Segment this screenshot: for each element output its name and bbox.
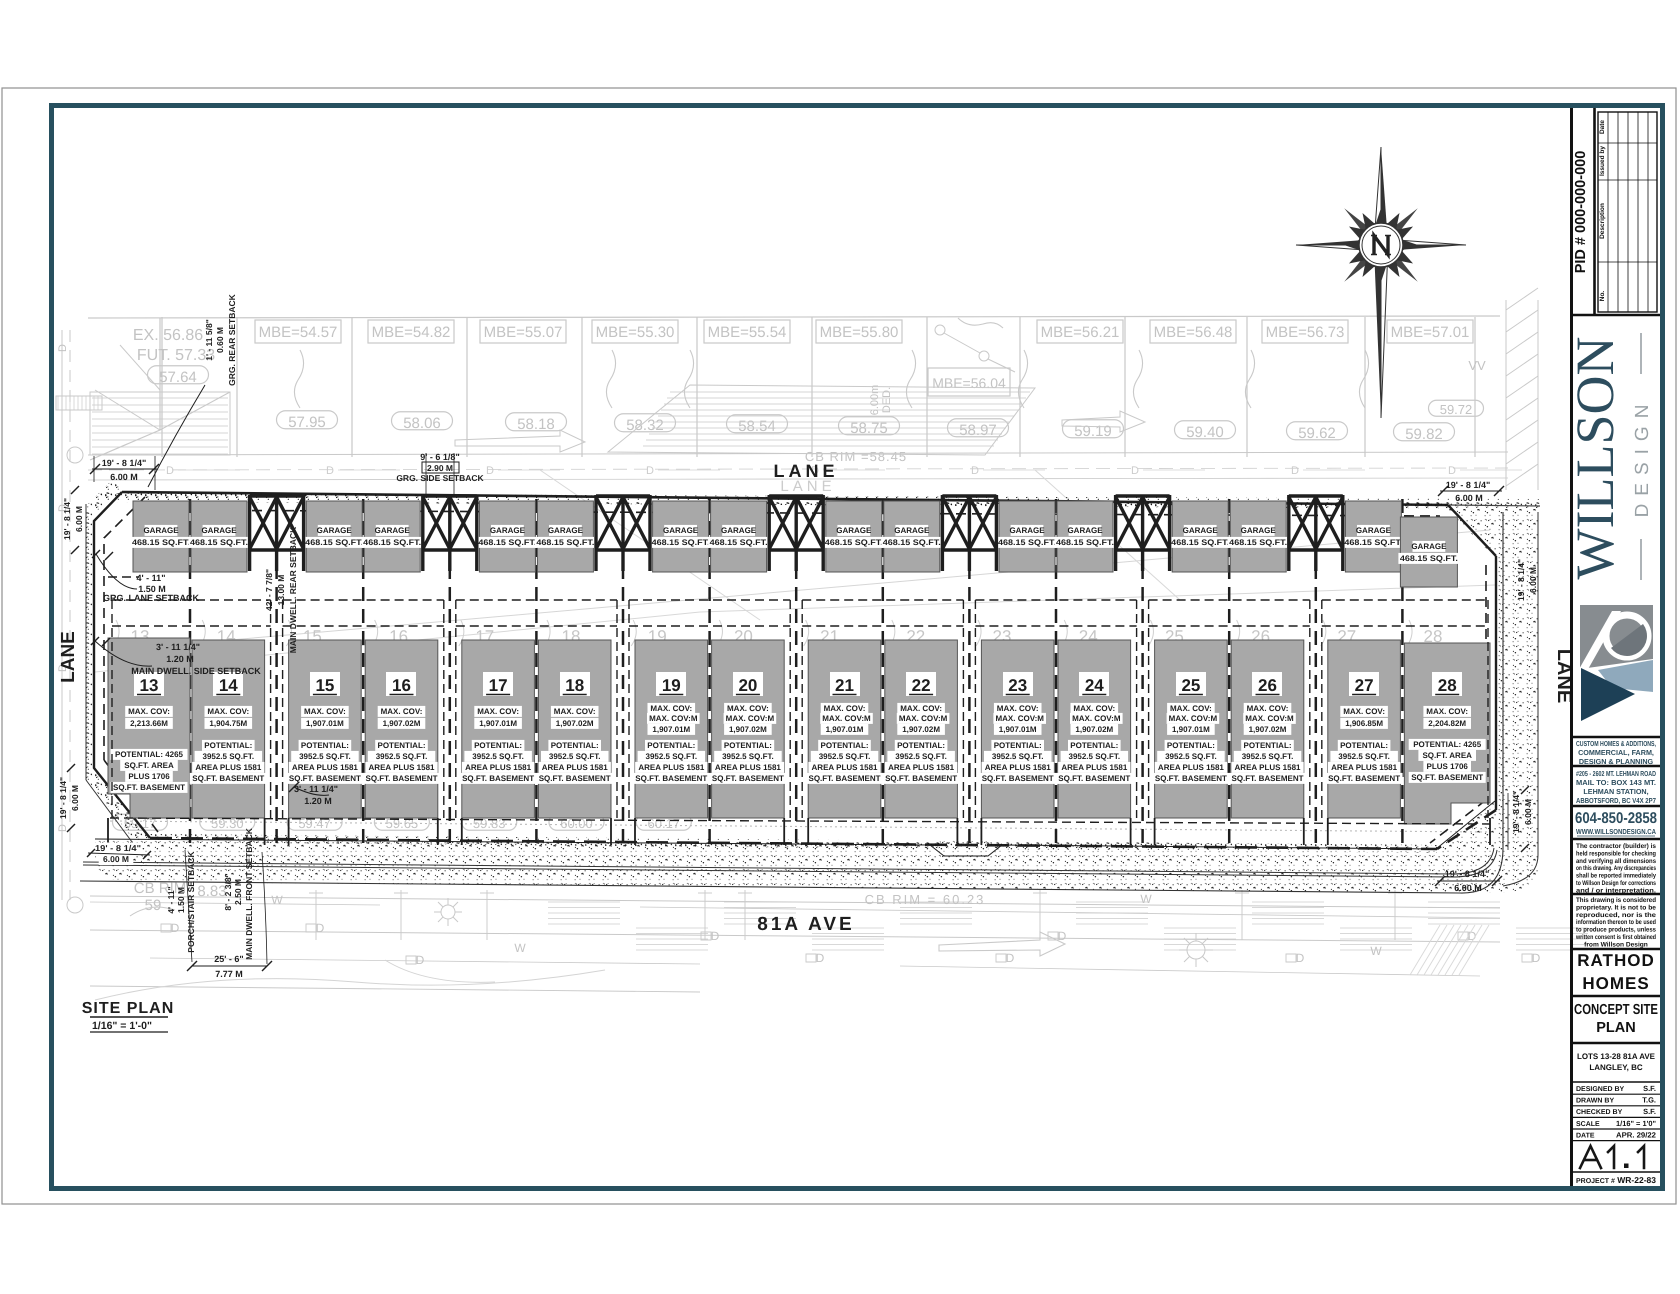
svg-text:16: 16 bbox=[392, 676, 411, 695]
svg-text:1,907.02M: 1,907.02M bbox=[902, 725, 940, 734]
svg-text:3952.5 SQ.FT.: 3952.5 SQ.FT. bbox=[203, 752, 255, 761]
svg-text:D: D bbox=[171, 921, 180, 935]
svg-text:Issued by: Issued by bbox=[1599, 146, 1606, 176]
svg-text:D: D bbox=[1532, 951, 1541, 965]
svg-text:GARAGE: GARAGE bbox=[1241, 526, 1277, 535]
svg-text:1,907.02M: 1,907.02M bbox=[1249, 725, 1287, 734]
svg-text:W: W bbox=[1370, 944, 1382, 958]
svg-text:CONCEPT SITE: CONCEPT SITE bbox=[1574, 1002, 1658, 1018]
svg-text:RATHOD: RATHOD bbox=[1577, 951, 1654, 970]
svg-text:2,213.66M: 2,213.66M bbox=[130, 719, 168, 728]
svg-text:6.00 M: 6.00 M bbox=[74, 506, 84, 532]
svg-text:POTENTIAL:: POTENTIAL: bbox=[897, 741, 945, 750]
svg-text:468.15 SQ.FT.: 468.15 SQ.FT. bbox=[883, 538, 941, 547]
svg-text:28: 28 bbox=[1438, 676, 1457, 695]
svg-text:1.20 M: 1.20 M bbox=[166, 654, 194, 664]
svg-text:MBE=56.04: MBE=56.04 bbox=[932, 375, 1006, 391]
svg-text:W: W bbox=[514, 941, 526, 955]
svg-text:3952.5 SQ.FT.: 3952.5 SQ.FT. bbox=[299, 752, 351, 761]
svg-text:AREA PLUS 1581: AREA PLUS 1581 bbox=[1158, 763, 1225, 772]
svg-text:D: D bbox=[711, 929, 720, 943]
svg-text:3952.5 SQ.FT.: 3952.5 SQ.FT. bbox=[722, 752, 774, 761]
svg-text:reproduced, nor is the: reproduced, nor is the bbox=[1576, 912, 1656, 919]
svg-text:DESIGNED BY: DESIGNED BY bbox=[1576, 1086, 1625, 1093]
svg-text:59.72: 59.72 bbox=[1440, 402, 1473, 417]
svg-text:DRAWN BY: DRAWN BY bbox=[1576, 1098, 1614, 1105]
svg-text:3952.5 SQ.FT.: 3952.5 SQ.FT. bbox=[1338, 752, 1390, 761]
svg-text:22: 22 bbox=[912, 676, 931, 695]
svg-text:MAX. COV:M: MAX. COV:M bbox=[1072, 714, 1121, 723]
svg-text:MAIN DWELL. FRONT SETBACK: MAIN DWELL. FRONT SETBACK bbox=[244, 827, 254, 960]
svg-text:GARAGE: GARAGE bbox=[1009, 526, 1045, 535]
svg-text:15: 15 bbox=[315, 676, 334, 695]
svg-text:59.82: 59.82 bbox=[1405, 426, 1443, 443]
svg-text:468.15 SQ.FT.: 468.15 SQ.FT. bbox=[536, 538, 594, 547]
svg-text:POTENTIAL:: POTENTIAL: bbox=[647, 741, 695, 750]
svg-text:468.15 SQ.FT.: 468.15 SQ.FT. bbox=[1400, 554, 1458, 563]
svg-text:42' - 7 7/8": 42' - 7 7/8" bbox=[264, 569, 274, 611]
svg-text:MBE=55.07: MBE=55.07 bbox=[484, 324, 563, 341]
svg-text:MAX. COV:M: MAX. COV:M bbox=[1245, 714, 1294, 723]
svg-text:DESIGN: DESIGN bbox=[1632, 397, 1653, 518]
svg-text:information thereon to be used: information thereon to be used bbox=[1576, 919, 1656, 926]
svg-text:MAX. COV:: MAX. COV: bbox=[997, 704, 1039, 713]
svg-text:MAX. COV:M: MAX. COV:M bbox=[899, 714, 948, 723]
svg-text:SQ.FT. BASEMENT: SQ.FT. BASEMENT bbox=[1058, 774, 1130, 783]
svg-text:written consent is first obtai: written consent is first obtained bbox=[1575, 934, 1656, 941]
svg-text:468.15 SQ.FT.: 468.15 SQ.FT. bbox=[190, 538, 248, 547]
svg-text:MAX. COV:: MAX. COV: bbox=[477, 707, 519, 716]
svg-text:D: D bbox=[57, 824, 69, 832]
svg-text:D: D bbox=[1006, 951, 1015, 965]
svg-text:GARAGE: GARAGE bbox=[663, 526, 699, 535]
svg-text:3952.5 SQ.FT.: 3952.5 SQ.FT. bbox=[472, 752, 524, 761]
svg-text:PORCH/STAIR SETBACK: PORCH/STAIR SETBACK bbox=[186, 850, 196, 952]
svg-text:GARAGE: GARAGE bbox=[894, 526, 930, 535]
svg-text:No.: No. bbox=[1599, 291, 1606, 302]
svg-text:3952.5 SQ.FT.: 3952.5 SQ.FT. bbox=[1242, 752, 1294, 761]
svg-text:19: 19 bbox=[662, 676, 681, 695]
svg-text:PROJECT #: PROJECT # bbox=[1576, 1178, 1615, 1185]
svg-text:19' - 8 1/4": 19' - 8 1/4" bbox=[1445, 869, 1489, 879]
svg-text:AREA PLUS 1581: AREA PLUS 1581 bbox=[292, 763, 359, 772]
svg-text:S.F.: S.F. bbox=[1643, 1107, 1656, 1116]
svg-text:1.50 M: 1.50 M bbox=[176, 887, 186, 913]
svg-text:GARAGE: GARAGE bbox=[317, 526, 353, 535]
svg-text:MAX. COV:: MAX. COV: bbox=[1073, 704, 1115, 713]
svg-text:AREA PLUS 1581: AREA PLUS 1581 bbox=[1235, 763, 1302, 772]
svg-text:MAX. COV:: MAX. COV: bbox=[381, 707, 423, 716]
svg-text:21: 21 bbox=[835, 676, 854, 695]
svg-text:3952.5 SQ.FT.: 3952.5 SQ.FT. bbox=[992, 752, 1044, 761]
svg-text:SQ.FT. BASEMENT: SQ.FT. BASEMENT bbox=[1411, 773, 1483, 782]
svg-text:MAX. COV:: MAX. COV: bbox=[650, 704, 692, 713]
svg-text:SQ.FT. BASEMENT: SQ.FT. BASEMENT bbox=[808, 774, 880, 783]
svg-text:6.00 M: 6.00 M bbox=[1454, 883, 1482, 893]
svg-text:468.15 SQ.FT.: 468.15 SQ.FT. bbox=[1229, 538, 1287, 547]
svg-text:1,906.85M: 1,906.85M bbox=[1345, 719, 1383, 728]
svg-text:D: D bbox=[326, 465, 334, 477]
svg-text:held responsible for checking: held responsible for checking bbox=[1576, 850, 1656, 857]
svg-text:468.15 SQ.FT.: 468.15 SQ.FT. bbox=[1344, 538, 1402, 547]
svg-text:GRG. REAR SETBACK: GRG. REAR SETBACK bbox=[227, 293, 237, 385]
svg-text:AREA PLUS 1581: AREA PLUS 1581 bbox=[715, 763, 782, 772]
svg-text:13: 13 bbox=[140, 676, 159, 695]
svg-text:3952.5 SQ.FT.: 3952.5 SQ.FT. bbox=[646, 752, 698, 761]
svg-text:GARAGE: GARAGE bbox=[721, 526, 757, 535]
svg-text:GARAGE: GARAGE bbox=[201, 526, 237, 535]
svg-text:D: D bbox=[166, 465, 174, 477]
svg-text:POTENTIAL:: POTENTIAL: bbox=[724, 741, 772, 750]
svg-text:APR. 29/22: APR. 29/22 bbox=[1616, 1130, 1656, 1139]
svg-text:SQ.FT. BASEMENT: SQ.FT. BASEMENT bbox=[1328, 774, 1400, 783]
svg-text:23: 23 bbox=[1008, 676, 1027, 695]
svg-text:MAX. COV:: MAX. COV: bbox=[1343, 707, 1385, 716]
svg-text:3952.5 SQ.FT.: 3952.5 SQ.FT. bbox=[376, 752, 428, 761]
svg-text:468.15 SQ.FT.: 468.15 SQ.FT. bbox=[363, 538, 421, 547]
svg-text:2.90 M: 2.90 M bbox=[427, 463, 453, 473]
svg-text:6.00 M: 6.00 M bbox=[1455, 493, 1483, 503]
svg-text:AREA PLUS 1581: AREA PLUS 1581 bbox=[812, 763, 879, 772]
svg-text:19' - 8 1/4": 19' - 8 1/4" bbox=[102, 458, 146, 468]
svg-text:MAX. COV:: MAX. COV: bbox=[824, 704, 866, 713]
svg-text:3952.5 SQ.FT.: 3952.5 SQ.FT. bbox=[1165, 752, 1217, 761]
svg-text:0.60 M: 0.60 M bbox=[215, 327, 225, 353]
svg-text:1,907.02M: 1,907.02M bbox=[1075, 725, 1113, 734]
svg-text:POTENTIAL:: POTENTIAL: bbox=[378, 741, 426, 750]
svg-text:468.15 SQ.FT.: 468.15 SQ.FT. bbox=[1056, 538, 1114, 547]
svg-text:VV: VV bbox=[1468, 358, 1486, 373]
svg-text:D: D bbox=[1131, 465, 1139, 477]
svg-text:CUSTOM HOMES & ADDITIONS,: CUSTOM HOMES & ADDITIONS, bbox=[1576, 739, 1656, 748]
svg-text:AREA PLUS 1581: AREA PLUS 1581 bbox=[465, 763, 532, 772]
svg-text:LANE: LANE bbox=[58, 631, 79, 683]
svg-text:MAX. COV:M: MAX. COV:M bbox=[995, 714, 1044, 723]
svg-text:SQ.FT. BASEMENT: SQ.FT. BASEMENT bbox=[1231, 774, 1303, 783]
svg-text:MAX. COV:: MAX. COV: bbox=[304, 707, 346, 716]
svg-text:1,907.01M: 1,907.01M bbox=[479, 719, 517, 728]
svg-text:1,907.01M: 1,907.01M bbox=[306, 719, 344, 728]
svg-text:19' - 8 1/4": 19' - 8 1/4" bbox=[1446, 480, 1490, 490]
svg-text:468.15 SQ.FT.: 468.15 SQ.FT. bbox=[478, 538, 536, 547]
svg-text:CHECKED BY: CHECKED BY bbox=[1576, 1109, 1623, 1116]
svg-text:D: D bbox=[1448, 465, 1456, 477]
svg-text:8' - 2 3/8": 8' - 2 3/8" bbox=[223, 873, 233, 910]
svg-text:MAIN DWELL. REAR SETBACK: MAIN DWELL. REAR SETBACK bbox=[288, 526, 298, 653]
svg-text:MAX. COV:: MAX. COV: bbox=[1247, 704, 1289, 713]
svg-text:14: 14 bbox=[219, 676, 238, 695]
svg-text:POTENTIAL:: POTENTIAL: bbox=[821, 741, 869, 750]
svg-text:MBE=56.21: MBE=56.21 bbox=[1041, 324, 1120, 341]
svg-text:468.15 SQ.FT.: 468.15 SQ.FT. bbox=[825, 538, 883, 547]
svg-text:D: D bbox=[486, 465, 494, 477]
svg-text:MAX. COV:M: MAX. COV:M bbox=[726, 714, 775, 723]
svg-text:shall be reported immediately: shall be reported immediately bbox=[1576, 873, 1656, 880]
svg-text:GARAGE: GARAGE bbox=[1067, 526, 1103, 535]
svg-text:POTENTIAL: 4265: POTENTIAL: 4265 bbox=[115, 750, 184, 759]
svg-text:GARAGE: GARAGE bbox=[1356, 526, 1392, 535]
svg-text:58.97: 58.97 bbox=[959, 422, 997, 439]
svg-text:AREA PLUS 1581: AREA PLUS 1581 bbox=[985, 763, 1052, 772]
svg-text:CB RIM = 60.23: CB RIM = 60.23 bbox=[865, 892, 986, 907]
svg-text:DESIGN & PLANNING: DESIGN & PLANNING bbox=[1579, 757, 1654, 766]
svg-text:SQ.FT. BASEMENT: SQ.FT. BASEMENT bbox=[885, 774, 957, 783]
svg-text:SQ.FT. BASEMENT: SQ.FT. BASEMENT bbox=[462, 774, 534, 783]
svg-text:3' - 11 1/4": 3' - 11 1/4" bbox=[294, 784, 338, 794]
svg-text:MBE=56.48: MBE=56.48 bbox=[1154, 324, 1233, 341]
svg-text:D: D bbox=[646, 465, 654, 477]
svg-text:3952.5 SQ.FT.: 3952.5 SQ.FT. bbox=[549, 752, 601, 761]
svg-text:SQ.FT. BASEMENT: SQ.FT. BASEMENT bbox=[539, 774, 611, 783]
svg-text:#205 - 2602 MT. LEHMAN ROAD: #205 - 2602 MT. LEHMAN ROAD bbox=[1576, 769, 1656, 778]
svg-text:HOMES: HOMES bbox=[1582, 974, 1649, 993]
svg-text:AREA PLUS 1581: AREA PLUS 1581 bbox=[1061, 763, 1128, 772]
svg-text:6.00m: 6.00m bbox=[869, 385, 881, 416]
svg-text:MBE=54.82: MBE=54.82 bbox=[372, 324, 451, 341]
svg-text:1,907.01M: 1,907.01M bbox=[826, 725, 864, 734]
svg-text:1,904.75M: 1,904.75M bbox=[209, 719, 247, 728]
svg-text:13.00 M: 13.00 M bbox=[276, 575, 286, 606]
svg-text:GARAGE: GARAGE bbox=[375, 526, 411, 535]
svg-text:59.40: 59.40 bbox=[1186, 424, 1224, 441]
svg-text:24: 24 bbox=[1085, 676, 1104, 695]
svg-text:19' - 8 1/4": 19' - 8 1/4" bbox=[62, 498, 72, 540]
svg-text:GARAGE: GARAGE bbox=[490, 526, 526, 535]
svg-text:WR-22-83: WR-22-83 bbox=[1617, 1175, 1656, 1185]
svg-text:58.06: 58.06 bbox=[403, 415, 441, 432]
svg-text:AREA PLUS 1581: AREA PLUS 1581 bbox=[369, 763, 436, 772]
svg-text:604-850-2858: 604-850-2858 bbox=[1575, 810, 1657, 827]
svg-text:This drawing is considered: This drawing is considered bbox=[1576, 897, 1656, 904]
svg-text:PID # 000-000-000: PID # 000-000-000 bbox=[1573, 151, 1589, 274]
svg-text:GARAGE: GARAGE bbox=[836, 526, 872, 535]
svg-text:59.62: 59.62 bbox=[1298, 425, 1336, 442]
svg-text:MAX. COV:M: MAX. COV:M bbox=[649, 714, 698, 723]
svg-text:W: W bbox=[271, 893, 283, 907]
svg-text:19' - 8 1/4": 19' - 8 1/4" bbox=[1516, 559, 1526, 601]
svg-text:on this drawing. Any discrepan: on this drawing. Any discrepancies bbox=[1576, 865, 1656, 872]
svg-text:18: 18 bbox=[565, 676, 584, 695]
svg-text:WILLSON: WILLSON bbox=[1565, 337, 1625, 580]
svg-text:4' - 11": 4' - 11" bbox=[166, 886, 176, 913]
svg-text:468.15 SQ.FT.: 468.15 SQ.FT. bbox=[710, 538, 768, 547]
svg-text:MBE=55.80: MBE=55.80 bbox=[820, 324, 899, 341]
svg-text:25' - 6": 25' - 6" bbox=[214, 954, 243, 964]
svg-text:GARAGE: GARAGE bbox=[143, 526, 179, 535]
svg-text:81A AVE: 81A AVE bbox=[757, 914, 854, 935]
svg-text:58.18: 58.18 bbox=[517, 416, 555, 433]
svg-text:468.15 SQ.FT.: 468.15 SQ.FT. bbox=[132, 538, 190, 547]
svg-text:The contractor (builder) is: The contractor (builder) is bbox=[1576, 843, 1656, 850]
svg-text:6.00 M: 6.00 M bbox=[110, 472, 138, 482]
svg-text:DED.: DED. bbox=[881, 387, 893, 413]
svg-text:468.15 SQ.FT.: 468.15 SQ.FT. bbox=[305, 538, 363, 547]
svg-text:to Willson Design for correcti: to Willson Design for corrections bbox=[1576, 880, 1656, 887]
svg-text:SQ.FT. AREA: SQ.FT. AREA bbox=[1422, 751, 1472, 760]
svg-text:17: 17 bbox=[489, 676, 508, 695]
svg-text:D: D bbox=[1291, 465, 1299, 477]
svg-text:MAX. COV:: MAX. COV: bbox=[128, 707, 170, 716]
svg-text:and verifying all dimensions: and verifying all dimensions bbox=[1576, 858, 1656, 865]
svg-text:MAX. COV:: MAX. COV: bbox=[727, 704, 769, 713]
svg-text:1,907.01M: 1,907.01M bbox=[652, 725, 690, 734]
svg-text:GRG. SIDE SETBACK: GRG. SIDE SETBACK bbox=[396, 473, 484, 483]
svg-text:MBE=54.57: MBE=54.57 bbox=[259, 324, 338, 341]
svg-text:SQ.FT. BASEMENT: SQ.FT. BASEMENT bbox=[982, 774, 1054, 783]
svg-text:PLUS 1706: PLUS 1706 bbox=[1427, 762, 1469, 771]
svg-text:SQ.FT. BASEMENT: SQ.FT. BASEMENT bbox=[712, 774, 784, 783]
svg-text:1' - 11 5/8": 1' - 11 5/8" bbox=[204, 319, 214, 361]
svg-text:MAIN DWELL. SIDE SETBACK: MAIN DWELL. SIDE SETBACK bbox=[131, 666, 261, 676]
svg-text:SQ.FT. BASEMENT: SQ.FT. BASEMENT bbox=[192, 774, 264, 783]
svg-text:MBE=57.01: MBE=57.01 bbox=[1391, 324, 1470, 341]
svg-text:58.32: 58.32 bbox=[626, 417, 664, 434]
svg-text:MBE=55.54: MBE=55.54 bbox=[708, 324, 787, 341]
svg-text:59: 59 bbox=[145, 897, 162, 914]
svg-text:POTENTIAL:: POTENTIAL: bbox=[551, 741, 599, 750]
svg-text:57.95: 57.95 bbox=[288, 414, 326, 431]
svg-text:19' - 8 1/4": 19' - 8 1/4" bbox=[58, 777, 68, 819]
svg-text:6.00 M: 6.00 M bbox=[1523, 799, 1533, 825]
svg-text:POTENTIAL:: POTENTIAL: bbox=[1244, 741, 1292, 750]
svg-text:2,204.82M: 2,204.82M bbox=[1428, 719, 1466, 728]
svg-text:26: 26 bbox=[1258, 676, 1277, 695]
svg-text:AREA PLUS 1581: AREA PLUS 1581 bbox=[195, 763, 262, 772]
svg-text:AREA PLUS 1581: AREA PLUS 1581 bbox=[888, 763, 955, 772]
svg-text:3952.5 SQ.FT.: 3952.5 SQ.FT. bbox=[1069, 752, 1121, 761]
svg-text:6.00 M: 6.00 M bbox=[70, 785, 80, 811]
svg-text:WWW.WILLSONDESIGN.CA: WWW.WILLSONDESIGN.CA bbox=[1576, 827, 1656, 836]
svg-text:MAX. COV:: MAX. COV: bbox=[1170, 704, 1212, 713]
svg-text:SQ.FT. AREA: SQ.FT. AREA bbox=[124, 761, 174, 770]
svg-text:468.15 SQ.FT.: 468.15 SQ.FT. bbox=[652, 538, 710, 547]
svg-text:6.00 M: 6.00 M bbox=[1528, 567, 1538, 593]
svg-text:W: W bbox=[1140, 892, 1152, 906]
svg-text:7.77 M: 7.77 M bbox=[215, 969, 243, 979]
svg-text:POTENTIAL:: POTENTIAL: bbox=[204, 741, 252, 750]
svg-text:MAX. COV:: MAX. COV: bbox=[207, 707, 249, 716]
svg-text:SQ.FT. BASEMENT: SQ.FT. BASEMENT bbox=[365, 774, 437, 783]
svg-text:Description: Description bbox=[1599, 203, 1606, 239]
svg-text:D: D bbox=[416, 953, 425, 967]
svg-text:SQ.FT. BASEMENT: SQ.FT. BASEMENT bbox=[113, 783, 185, 792]
svg-text:D: D bbox=[57, 344, 69, 352]
svg-text:468.15 SQ.FT.: 468.15 SQ.FT. bbox=[998, 538, 1056, 547]
svg-text:1,907.02M: 1,907.02M bbox=[729, 725, 767, 734]
svg-text:DATE: DATE bbox=[1576, 1132, 1595, 1139]
svg-text:D: D bbox=[1296, 951, 1305, 965]
svg-text:27: 27 bbox=[1355, 676, 1374, 695]
svg-text:468.15 SQ.FT.: 468.15 SQ.FT. bbox=[1171, 538, 1229, 547]
svg-text:3952.5 SQ.FT.: 3952.5 SQ.FT. bbox=[895, 752, 947, 761]
svg-text:MAX. COV:: MAX. COV: bbox=[554, 707, 596, 716]
svg-text:LANE: LANE bbox=[780, 478, 835, 495]
svg-text:COMMERCIAL, FARM,: COMMERCIAL, FARM, bbox=[1578, 748, 1654, 757]
svg-text:2.50 M: 2.50 M bbox=[233, 879, 243, 905]
svg-text:MAX. COV:: MAX. COV: bbox=[900, 704, 942, 713]
svg-text:GARAGE: GARAGE bbox=[1411, 542, 1447, 551]
svg-text:S.F.: S.F. bbox=[1643, 1084, 1656, 1093]
svg-text:POTENTIAL:: POTENTIAL: bbox=[1167, 741, 1215, 750]
svg-text:EX. 56.86: EX. 56.86 bbox=[133, 327, 203, 344]
svg-text:25: 25 bbox=[1181, 676, 1200, 695]
svg-text:D: D bbox=[316, 921, 325, 935]
svg-text:1.20 M: 1.20 M bbox=[304, 796, 332, 806]
svg-text:1,907.02M: 1,907.02M bbox=[556, 719, 594, 728]
svg-text:1/16" = 1'-0": 1/16" = 1'-0" bbox=[92, 1020, 152, 1032]
svg-text:from Willson Design: from Willson Design bbox=[1584, 941, 1648, 948]
svg-text:GRG. LANE SETBACK: GRG. LANE SETBACK bbox=[103, 593, 200, 603]
svg-text:19' - 8 1/4": 19' - 8 1/4" bbox=[95, 843, 141, 853]
svg-text:AREA PLUS 1581: AREA PLUS 1581 bbox=[542, 763, 609, 772]
svg-text:POTENTIAL:: POTENTIAL: bbox=[474, 741, 522, 750]
svg-text:AREA PLUS 1581: AREA PLUS 1581 bbox=[638, 763, 705, 772]
svg-text:SQ.FT. BASEMENT: SQ.FT. BASEMENT bbox=[1155, 774, 1227, 783]
svg-text:1,907.01M: 1,907.01M bbox=[1172, 725, 1210, 734]
svg-text:MBE=55.30: MBE=55.30 bbox=[596, 324, 675, 341]
svg-text:19' - 8 1/4": 19' - 8 1/4" bbox=[1511, 791, 1521, 833]
svg-text:20: 20 bbox=[738, 676, 757, 695]
svg-text:58.54: 58.54 bbox=[738, 418, 776, 435]
svg-text:GARAGE: GARAGE bbox=[548, 526, 584, 535]
svg-text:to produce products, unless: to produce products, unless bbox=[1576, 927, 1656, 934]
svg-text:MAX. COV:M: MAX. COV:M bbox=[822, 714, 871, 723]
svg-text:LANGLEY, BC: LANGLEY, BC bbox=[1589, 1063, 1643, 1072]
svg-text:1,907.01M: 1,907.01M bbox=[999, 725, 1037, 734]
svg-text:6.00 M: 6.00 M bbox=[103, 854, 129, 864]
svg-text:D: D bbox=[816, 951, 825, 965]
svg-text:ABBOTSFORD, BC V4X 2P7: ABBOTSFORD, BC V4X 2P7 bbox=[1576, 796, 1656, 805]
svg-text:SQ.FT. BASEMENT: SQ.FT. BASEMENT bbox=[289, 774, 361, 783]
svg-text:MBE=56.73: MBE=56.73 bbox=[1266, 324, 1345, 341]
svg-text:PLUS 1706: PLUS 1706 bbox=[128, 772, 170, 781]
svg-text:3952.5 SQ.FT.: 3952.5 SQ.FT. bbox=[819, 752, 871, 761]
svg-text:Date: Date bbox=[1599, 120, 1606, 134]
svg-text:3' - 11 1/4": 3' - 11 1/4" bbox=[156, 642, 200, 652]
svg-text:proprietary. It is not to be: proprietary. It is not to be bbox=[1576, 904, 1656, 911]
svg-text:AREA PLUS 1581: AREA PLUS 1581 bbox=[1331, 763, 1398, 772]
svg-text:POTENTIAL: 4265: POTENTIAL: 4265 bbox=[1413, 740, 1482, 749]
svg-text:LOTS 13-28 81A AVE: LOTS 13-28 81A AVE bbox=[1577, 1052, 1656, 1061]
svg-text:MAIL TO: BOX 143 MT.: MAIL TO: BOX 143 MT. bbox=[1576, 778, 1656, 787]
svg-text:GARAGE: GARAGE bbox=[1183, 526, 1219, 535]
svg-text:POTENTIAL:: POTENTIAL: bbox=[301, 741, 349, 750]
svg-text:1/16" = 1'0": 1/16" = 1'0" bbox=[1616, 1119, 1656, 1128]
svg-text:SCALE: SCALE bbox=[1576, 1121, 1600, 1128]
svg-text:59.19: 59.19 bbox=[1074, 423, 1112, 440]
svg-text:POTENTIAL:: POTENTIAL: bbox=[1070, 741, 1118, 750]
svg-text:D: D bbox=[971, 465, 979, 477]
svg-text:57.64: 57.64 bbox=[159, 369, 197, 386]
svg-text:POTENTIAL:: POTENTIAL: bbox=[994, 741, 1042, 750]
svg-text:1,907.02M: 1,907.02M bbox=[383, 719, 421, 728]
svg-text:POTENTIAL:: POTENTIAL: bbox=[1340, 741, 1388, 750]
svg-text:LEHMAN STATION,: LEHMAN STATION, bbox=[1583, 787, 1648, 796]
svg-text:MAX. COV:M: MAX. COV:M bbox=[1169, 714, 1218, 723]
svg-text:PLAN: PLAN bbox=[1596, 1020, 1635, 1036]
svg-text:SQ.FT. BASEMENT: SQ.FT. BASEMENT bbox=[635, 774, 707, 783]
svg-text:T.G.: T.G. bbox=[1642, 1096, 1656, 1105]
svg-text:MAX. COV:: MAX. COV: bbox=[1426, 707, 1468, 716]
svg-text:4' - 11": 4' - 11" bbox=[137, 573, 166, 583]
svg-text:SITE PLAN: SITE PLAN bbox=[82, 1000, 175, 1017]
